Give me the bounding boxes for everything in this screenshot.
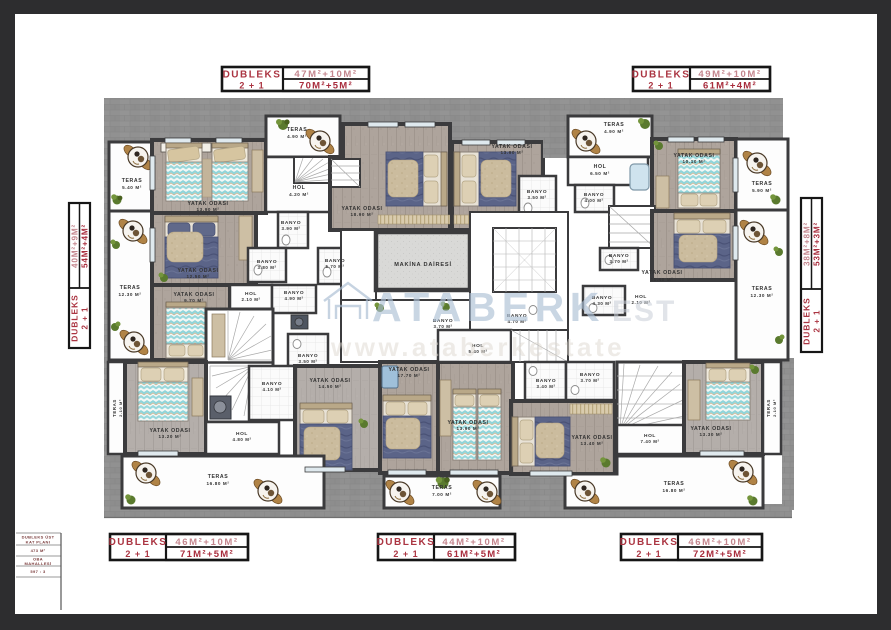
svg-text:2.10 M²: 2.10 M² [241, 297, 260, 302]
svg-text:4.90 M²: 4.90 M² [604, 129, 624, 134]
svg-text:46M²+10M²: 46M²+10M² [175, 537, 238, 548]
svg-text:2 + 1: 2 + 1 [648, 81, 673, 91]
svg-text:16.80 M²: 16.80 M² [663, 488, 686, 493]
svg-text:TERAS: TERAS [752, 286, 773, 292]
svg-text:13.20 M²: 13.20 M² [159, 434, 182, 439]
svg-text:597 : 3: 597 : 3 [30, 569, 46, 574]
svg-text:4.20 M²: 4.20 M² [289, 192, 309, 197]
svg-text:2.10 M²: 2.10 M² [772, 399, 777, 417]
svg-text:DUBLEKS: DUBLEKS [802, 297, 812, 344]
svg-text:70M²+5M²: 70M²+5M² [299, 81, 353, 92]
svg-text:2 + 1: 2 + 1 [393, 549, 418, 559]
svg-text:MAKİNA DAİRESİ: MAKİNA DAİRESİ [394, 261, 452, 268]
svg-text:5.70 M²: 5.70 M² [325, 264, 344, 269]
svg-text:14.50 M²: 14.50 M² [319, 384, 342, 389]
svg-text:TERAS: TERAS [664, 481, 685, 487]
svg-text:DUBLEKS: DUBLEKS [620, 537, 679, 548]
svg-text:61M²+4M²: 61M²+4M² [703, 81, 757, 92]
svg-text:TERAS: TERAS [112, 399, 117, 417]
svg-text:473 M²: 473 M² [31, 548, 46, 553]
svg-text:HOL: HOL [594, 164, 607, 170]
svg-text:18.90 M²: 18.90 M² [351, 212, 374, 217]
svg-text:12.50 M²: 12.50 M² [187, 274, 210, 279]
svg-text:13.90 M²: 13.90 M² [457, 426, 480, 431]
svg-text:13.30 M²: 13.30 M² [700, 432, 723, 437]
svg-text:4.80 M²: 4.80 M² [232, 437, 251, 442]
svg-text:2 + 1: 2 + 1 [239, 81, 264, 91]
svg-text:13.40 M²: 13.40 M² [581, 441, 604, 446]
svg-text:72M²+5M²: 72M²+5M² [693, 549, 747, 560]
svg-text:6.50 M²: 6.50 M² [590, 171, 610, 176]
svg-text:4.00 M²: 4.00 M² [584, 198, 603, 203]
svg-text:TERAS: TERAS [120, 285, 141, 291]
svg-text:3.50 M²: 3.50 M² [527, 195, 546, 200]
svg-text:TERAS: TERAS [287, 127, 308, 133]
svg-text:TERAS: TERAS [122, 178, 143, 184]
svg-text:2 + 1: 2 + 1 [636, 549, 661, 559]
svg-text:TERAS: TERAS [766, 399, 771, 417]
svg-text:HOL: HOL [293, 185, 306, 191]
svg-text:TERAS: TERAS [432, 485, 453, 491]
svg-text:DUBLEKS: DUBLEKS [632, 70, 691, 81]
svg-text:46M²+10M²: 46M²+10M² [688, 537, 751, 548]
svg-text:4.90 M²: 4.90 M² [287, 134, 307, 139]
svg-text:38M²+8M²: 38M²+8M² [802, 222, 811, 266]
svg-text:3.40 M²: 3.40 M² [536, 384, 555, 389]
svg-text:16.80 M²: 16.80 M² [207, 481, 230, 486]
svg-text:3.50 M²: 3.50 M² [298, 359, 317, 364]
svg-text:2.10 M²: 2.10 M² [118, 399, 123, 417]
svg-text:49M²+10M²: 49M²+10M² [698, 69, 761, 80]
svg-text:YATAK ODASI: YATAK ODASI [641, 270, 682, 276]
svg-text:13.90 M²: 13.90 M² [501, 150, 524, 155]
svg-text:53M²+3M²: 53M²+3M² [813, 222, 822, 266]
svg-text:TERAS: TERAS [208, 474, 229, 480]
svg-text:44M²+10M²: 44M²+10M² [442, 537, 505, 548]
svg-text:54M²+4M²: 54M²+4M² [81, 224, 90, 268]
svg-text:KAT PLANI: KAT PLANI [26, 540, 51, 545]
svg-text:TERAS: TERAS [604, 122, 625, 128]
svg-text:3.90 M²: 3.90 M² [281, 226, 300, 231]
svg-text:DUBLEKS: DUBLEKS [109, 537, 168, 548]
svg-text:47M²+10M²: 47M²+10M² [294, 69, 357, 80]
svg-text:17.70 M²: 17.70 M² [398, 373, 421, 378]
svg-text:EST: EST [612, 295, 676, 328]
svg-text:3.70 M²: 3.70 M² [609, 259, 628, 264]
svg-text:DUBLEKS: DUBLEKS [223, 70, 282, 81]
svg-text:40M²+9M²: 40M²+9M² [70, 224, 79, 268]
svg-text:61M²+5M²: 61M²+5M² [447, 549, 501, 560]
svg-text:5.40 M²: 5.40 M² [122, 185, 142, 190]
svg-text:DUBLEKS: DUBLEKS [70, 294, 80, 341]
svg-text:12.30 M²: 12.30 M² [751, 293, 774, 298]
svg-text:2 + 1: 2 + 1 [81, 306, 90, 329]
svg-text:10.10 M²: 10.10 M² [683, 159, 706, 164]
svg-text:7.40 M²: 7.40 M² [640, 439, 659, 444]
svg-text:2 + 1: 2 + 1 [125, 549, 150, 559]
svg-text:4.90 M²: 4.90 M² [284, 296, 303, 301]
svg-text:9.70 M²: 9.70 M² [184, 298, 204, 303]
svg-text:7.00 M²: 7.00 M² [432, 492, 452, 497]
svg-text:TERAS: TERAS [752, 181, 773, 187]
svg-text:ATABERK: ATABERK [372, 284, 605, 330]
svg-text:3.80 M²: 3.80 M² [257, 265, 276, 270]
svg-text:13.90 M²: 13.90 M² [197, 207, 220, 212]
svg-text:71M²+5M²: 71M²+5M² [180, 549, 234, 560]
svg-text:DUBLEKS: DUBLEKS [377, 537, 436, 548]
svg-text:3.70 M²: 3.70 M² [580, 378, 599, 383]
svg-text:MAHALLESİ: MAHALLESİ [25, 561, 52, 566]
svg-text:5.90 M²: 5.90 M² [752, 188, 772, 193]
svg-text:4.10 M²: 4.10 M² [262, 387, 281, 392]
svg-text:12.30 M²: 12.30 M² [119, 292, 142, 297]
svg-text:www.ataberkestate: www.ataberkestate [330, 332, 625, 362]
svg-text:11.40 M²: 11.40 M² [651, 277, 674, 282]
svg-text:2 + 1: 2 + 1 [813, 309, 822, 332]
